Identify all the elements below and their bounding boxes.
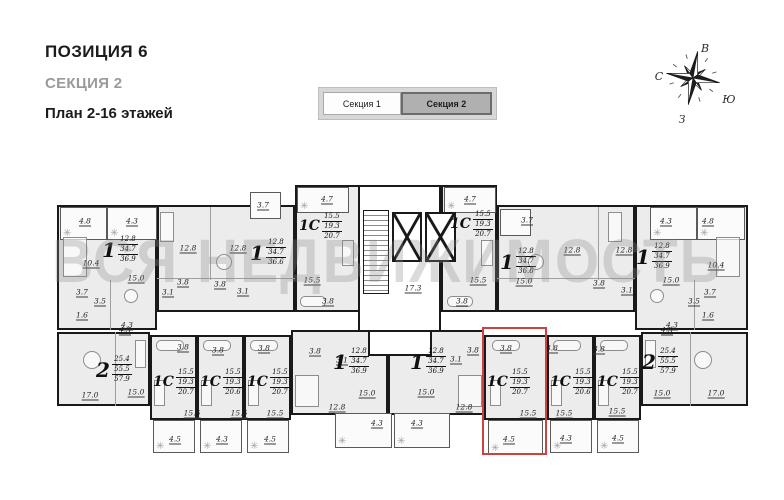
room-area-label: 3.8 [177,344,189,353]
furniture [135,340,146,368]
unit-type: 1 [333,352,347,372]
unit-label: 112.834.736.9 [333,347,369,376]
unit-areas: 12.834.736.9 [349,347,369,376]
unit-areas: 15.519.320.7 [620,368,640,397]
room-area-label: 15.0 [359,390,376,399]
unit-areas: 25.455.557.9 [658,347,678,376]
room-area-label: 4.5 [264,436,276,445]
unit-type: 1 [410,352,424,372]
room-area-label: 15.5 [231,410,248,419]
watermark: ВСЯ НЕДВИЖИМОСТЬ [52,226,752,297]
unit-label: 1С15.519.320.6 [200,368,243,397]
unit-type: 1С [597,375,618,390]
room-area-label: 1.6 [702,312,714,321]
room-area-label: 3.8 [593,346,605,355]
room-area-label: 1.6 [76,312,88,321]
room-area-label: 4.7 [321,196,333,205]
unit-type: 1С [200,375,221,390]
furniture [694,351,712,369]
unit-label: 1С15.519.320.7 [597,368,640,397]
room-area-label: 4.3 [411,420,423,429]
room-area-label: 3.7 [257,202,269,211]
selected-unit-highlight [482,327,547,455]
room-area-label: 3.8 [309,348,321,357]
unit-areas: 12.834.736.9 [426,347,446,376]
room-area-label: 4.3 [560,435,572,444]
room-area-label: 12.8 [456,404,473,413]
room-area-label: 3.8 [322,298,334,307]
unit-type: 2 [96,360,110,380]
room-area-label: 15.0 [418,389,435,398]
unit-label: 1С15.519.320.6 [550,368,593,397]
room-area-label: 17.0 [82,392,99,401]
furniture [295,375,319,407]
room-area-label: 3.8 [212,347,224,356]
room-area-label: 4.3 [119,327,131,336]
room-area-label: 15.5 [609,408,626,417]
unit-label: 112.834.736.9 [410,347,446,376]
unit-label: 1С15.519.320.7 [247,368,290,397]
unit-label: 1С15.519.320.7 [153,368,196,397]
plant-icon: ✳ [553,442,561,452]
balcony: ✳ [335,413,392,448]
plant-icon: ✳ [156,442,164,452]
plant-icon: ✳ [600,442,608,452]
room-area-label: 4.3 [661,327,673,336]
room-area-label: 15.0 [128,389,145,398]
plant-icon: ✳ [203,442,211,452]
room-area-label: 4.5 [169,436,181,445]
plant-icon: ✳ [397,437,405,447]
room-area-label: 12.8 [329,404,346,413]
unit-areas: 15.519.320.7 [270,368,290,397]
unit-type: 1С [550,375,571,390]
room-area-label: 3.8 [258,345,270,354]
room-area-label: 15.0 [654,390,671,399]
unit-areas: 25.455.557.9 [112,355,132,384]
plant-icon: ✳ [300,202,308,212]
room-area-label: 3.1 [450,356,462,365]
room-area-label: 3.5 [94,298,106,307]
room-area-label: 3.7 [521,217,533,226]
room-area-label: 3.8 [467,347,479,356]
room-area-label: 15.5 [556,410,573,419]
unit-label: 225.455.557.9 [96,355,132,384]
room-area-label: 3.5 [688,298,700,307]
unit-label: 225.455.557.9 [642,347,678,376]
room-area-label: 4.7 [464,196,476,205]
room-area-label: 15.5 [184,410,201,419]
page: ПОЗИЦИЯ 6 СЕКЦИЯ 2 План 2-16 этажей Секц… [0,0,784,500]
plant-icon: ✳ [250,442,258,452]
room-area-label: 15.5 [267,410,284,419]
unit-type: 1С [153,375,174,390]
room-area-label: 4.3 [371,420,383,429]
unit-areas: 15.519.320.7 [176,368,196,397]
unit-type: 1С [247,375,268,390]
room-area-label: 17.0 [708,390,725,399]
plant-icon: ✳ [338,437,346,447]
wall-partition [690,332,691,406]
unit-type: 2 [642,352,656,372]
room-area-label: 4.5 [612,435,624,444]
unit-areas: 15.519.320.6 [223,368,243,397]
room-area-label: 3.8 [546,345,558,354]
room-area-label: 3.8 [456,298,468,307]
unit-areas: 15.519.320.6 [573,368,593,397]
room-area-label: 4.3 [216,436,228,445]
